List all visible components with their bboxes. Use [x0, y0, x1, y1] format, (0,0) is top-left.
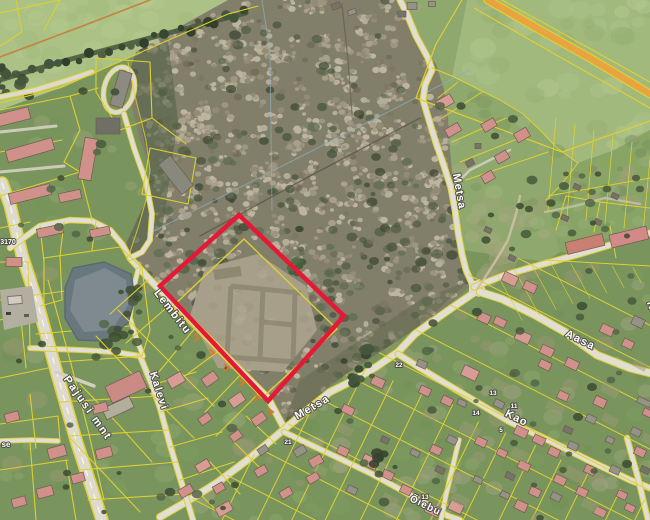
- svg-text:22: 22: [395, 362, 403, 369]
- svg-text:14: 14: [472, 410, 480, 417]
- svg-text:se: se: [2, 440, 11, 449]
- svg-text:13: 13: [421, 494, 429, 501]
- svg-text:13: 13: [489, 390, 497, 397]
- svg-text:5: 5: [499, 427, 503, 434]
- svg-text:3170: 3170: [0, 239, 16, 246]
- svg-text:11: 11: [511, 403, 518, 410]
- svg-text:21: 21: [284, 439, 292, 446]
